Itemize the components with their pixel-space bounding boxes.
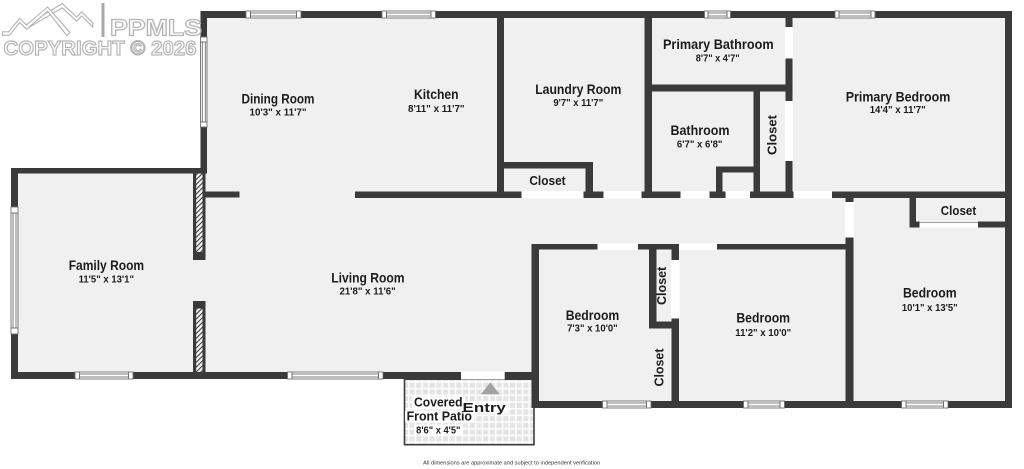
svg-text:Primary Bathroom: Primary Bathroom — [663, 37, 774, 52]
svg-text:Entry: Entry — [463, 401, 506, 415]
svg-text:Living Room: Living Room — [331, 271, 404, 286]
svg-text:All dimensions are approximate: All dimensions are approximate and subje… — [423, 461, 600, 467]
svg-text:8'6" x 4'5": 8'6" x 4'5" — [416, 425, 460, 436]
svg-text:COPYRIGHT © 2026: COPYRIGHT © 2026 — [4, 37, 197, 60]
svg-text:9'7" x 11'7": 9'7" x 11'7" — [553, 98, 603, 109]
svg-text:Covered: Covered — [414, 394, 463, 409]
svg-text:Closet: Closet — [529, 174, 566, 188]
svg-text:10'3" x 11'7": 10'3" x 11'7" — [250, 107, 307, 118]
svg-text:Kitchen: Kitchen — [414, 87, 459, 102]
svg-text:8'7" x 4'7": 8'7" x 4'7" — [696, 53, 740, 64]
svg-text:11'2" x 10'0": 11'2" x 10'0" — [735, 328, 791, 339]
svg-text:Bathroom: Bathroom — [670, 123, 729, 138]
svg-text:8'11" x 11'7": 8'11" x 11'7" — [408, 104, 465, 115]
svg-text:Dining Room: Dining Room — [242, 92, 315, 107]
svg-text:Bedroom: Bedroom — [736, 311, 790, 326]
svg-text:Closet: Closet — [766, 114, 780, 155]
svg-text:7'3" x 10'0": 7'3" x 10'0" — [567, 324, 618, 335]
svg-text:Bedroom: Bedroom — [903, 286, 957, 301]
svg-text:Bedroom: Bedroom — [566, 308, 620, 323]
svg-text:6'7" x 6'8": 6'7" x 6'8" — [677, 140, 723, 151]
svg-text:Closet: Closet — [653, 348, 667, 387]
svg-text:21'8" x 11'6": 21'8" x 11'6" — [340, 286, 396, 297]
svg-text:14'4" x 11'7": 14'4" x 11'7" — [870, 105, 926, 116]
svg-text:Laundry Room: Laundry Room — [535, 82, 621, 97]
svg-text:Primary Bedroom: Primary Bedroom — [846, 89, 951, 104]
svg-text:Family Room: Family Room — [69, 258, 144, 273]
svg-text:Closet: Closet — [655, 266, 669, 305]
svg-text:11'5" x 13'1": 11'5" x 13'1" — [79, 274, 135, 285]
svg-text:Closet: Closet — [941, 204, 977, 218]
svg-text:10'1" x 13'5": 10'1" x 13'5" — [902, 303, 958, 314]
